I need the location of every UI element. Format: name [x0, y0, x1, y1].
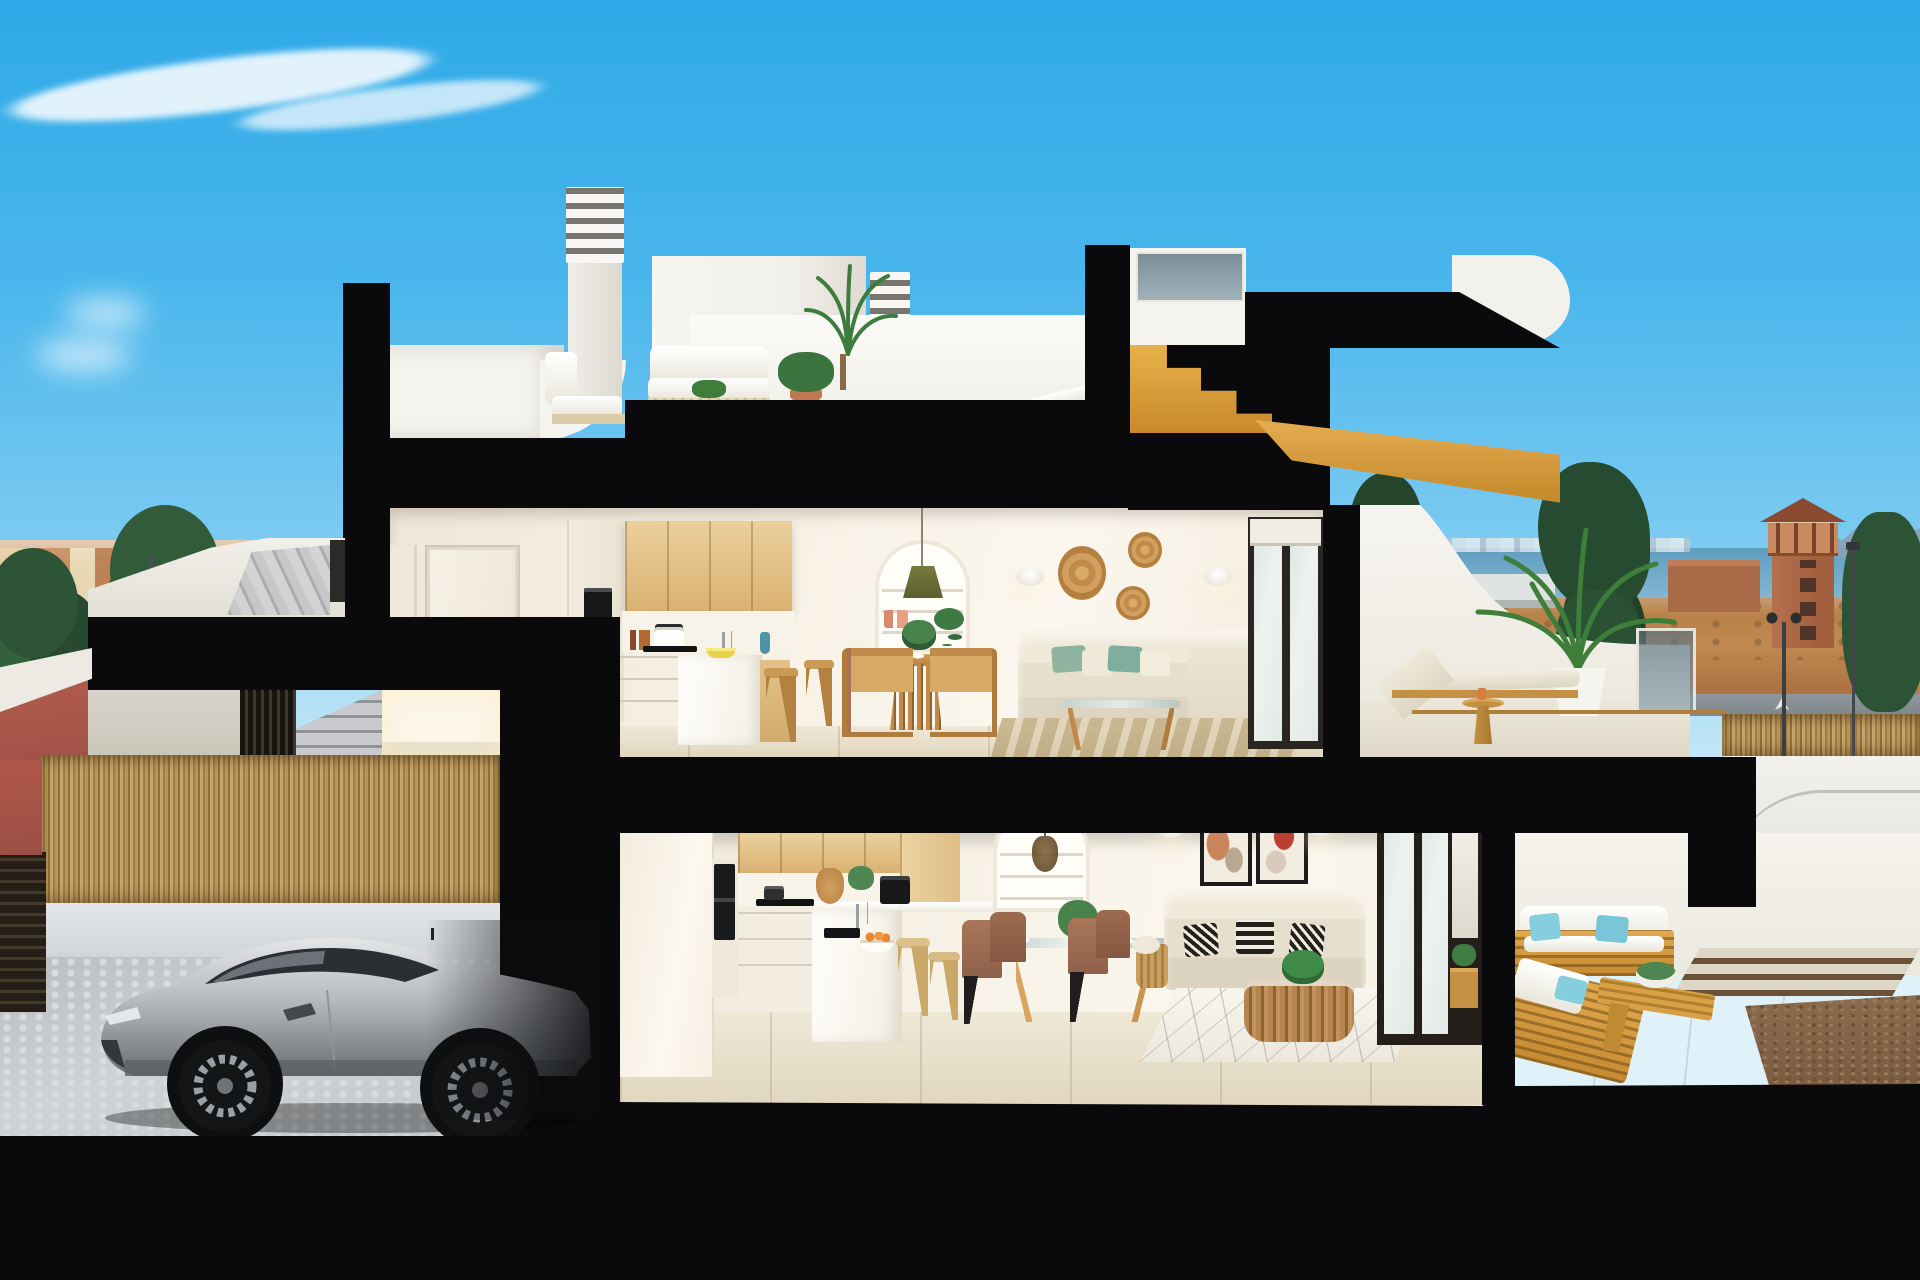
dining-chair-right	[930, 648, 997, 737]
lower-left-wall	[620, 833, 714, 1077]
coffee-machine	[880, 876, 910, 904]
blue-pillow-2	[1595, 915, 1629, 944]
coffee-table-legs	[1068, 708, 1174, 750]
upper-sliding-glass-2	[1290, 545, 1318, 741]
blue-pillow-1	[1529, 913, 1562, 942]
stair-top-door	[330, 540, 345, 602]
lower-oak-cabinets	[738, 833, 900, 873]
cut-column-roof-right	[1085, 245, 1130, 420]
sconce-upper-left	[1016, 568, 1044, 586]
right-roof-glass	[1136, 252, 1244, 302]
pendant-cord	[921, 505, 923, 567]
cut-wall-upper-terrace	[1323, 505, 1360, 757]
upper-stool-2-legs	[806, 668, 832, 726]
brick-building	[1668, 560, 1760, 612]
render-root	[0, 0, 1920, 1280]
lower-glass-2	[1422, 818, 1448, 1034]
timber-deck-strips	[1672, 948, 1920, 996]
behind-glass-plant	[1452, 944, 1476, 966]
roof-lounge-seat	[552, 396, 622, 416]
wire-pendant	[1032, 836, 1058, 872]
lower-base-cabinets	[738, 906, 814, 990]
upper-sliding-glass-1	[1254, 545, 1282, 741]
upper-blind-box	[1250, 519, 1321, 546]
upper-stool-1-legs	[766, 676, 796, 742]
oranges	[864, 932, 890, 942]
cloud-small-2	[36, 340, 132, 370]
cut-roof-slab-left	[388, 438, 628, 508]
entrance-hall	[382, 690, 500, 760]
watchtower-loggia	[1768, 520, 1838, 556]
porch-wall	[88, 690, 240, 760]
lower-chair-left-2	[990, 912, 1026, 962]
lamp-double-heads	[1766, 612, 1802, 624]
lower-stool-2-legs	[930, 960, 958, 1020]
lamp-double-pole	[1782, 622, 1786, 758]
sports-car	[95, 890, 600, 1140]
lower-pot	[764, 886, 784, 900]
upper-island	[678, 655, 762, 745]
roof-table-plant	[692, 380, 726, 398]
pillow-green-2	[1107, 645, 1142, 673]
sconce-upper-right	[1204, 568, 1232, 586]
bw-pillow-1	[1183, 923, 1220, 958]
dining-chair-left	[842, 648, 913, 737]
lamp-tall-head	[1846, 542, 1860, 550]
table-plant-lower	[1282, 950, 1324, 984]
wall-plate-top	[1128, 532, 1162, 568]
rattan-jug	[816, 868, 844, 904]
lower-glass-blind	[1452, 818, 1478, 938]
cut-roof-slab-main	[625, 400, 1130, 508]
wall-plate-large	[1058, 546, 1106, 600]
lower-cooktop	[756, 899, 814, 906]
lower-glass-1	[1384, 818, 1414, 1034]
bamboo-fence-right	[1722, 714, 1920, 758]
cloud-small	[66, 300, 146, 326]
bw-pillow-2	[1236, 920, 1274, 954]
lower-chair-right-1-legs	[1070, 972, 1106, 1022]
watchtower-windows	[1800, 560, 1816, 640]
bamboo-fence-garage	[40, 755, 500, 905]
coffee-table-glass	[1062, 700, 1180, 708]
roof-sofa-back	[650, 346, 768, 382]
roof-lounge-base	[552, 414, 626, 424]
pillow-cream-2	[1140, 650, 1170, 676]
table-centerpiece	[902, 620, 936, 650]
basket-coffee-table	[1244, 980, 1354, 1042]
lower-stool-1-legs	[898, 946, 928, 1016]
peninsula-faucet	[856, 904, 859, 928]
fence-left-sliver	[0, 760, 42, 855]
lower-chair-right-2	[1096, 910, 1130, 958]
peninsula-sink	[824, 928, 860, 938]
lower-oven	[714, 864, 735, 940]
lower-chair-left-1-legs	[964, 976, 1000, 1024]
roof-parapet-left	[388, 345, 564, 440]
chimney-tall-louvers	[566, 187, 624, 263]
basket-blanket	[1132, 936, 1160, 954]
porch-gate-slats	[240, 690, 296, 760]
terrace-cup	[1478, 688, 1486, 700]
blue-vase	[760, 632, 770, 654]
wall-plate-bottom	[1116, 586, 1150, 620]
cut-column-lower-right	[1482, 830, 1515, 1105]
lamp-tall-pole	[1852, 548, 1855, 758]
counter-plant-sprigs	[848, 866, 874, 890]
gravel-bed	[1745, 995, 1920, 1087]
bench-planter	[1636, 962, 1676, 988]
trailing-plant	[934, 608, 964, 630]
cut-mid-slab-right-drop	[1688, 757, 1756, 907]
upper-oak-cabinets	[625, 521, 792, 611]
behind-glass-side-table	[1450, 968, 1478, 1008]
dark-side-gate	[0, 852, 46, 1012]
cut-column-left	[343, 283, 390, 635]
